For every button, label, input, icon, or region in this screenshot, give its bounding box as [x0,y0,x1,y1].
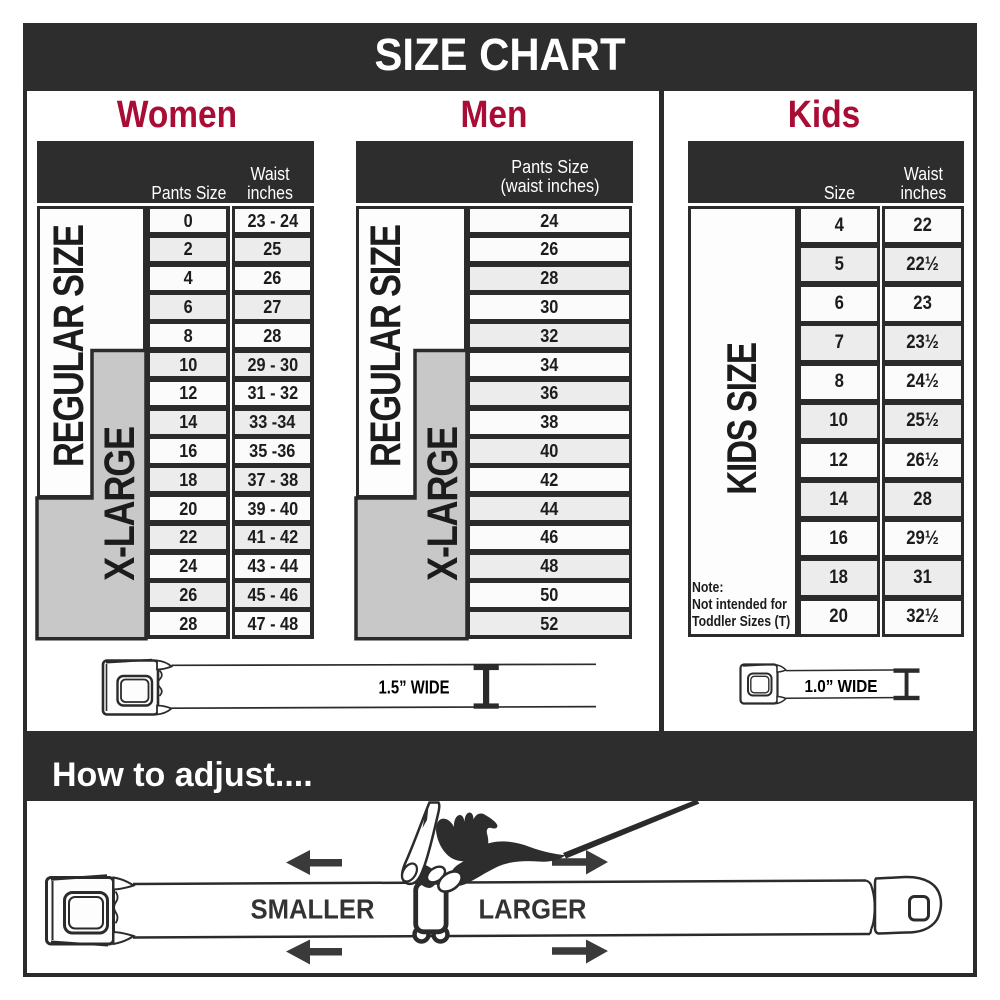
svg-text:SMALLER: SMALLER [251,893,375,924]
svg-text:1.5” WIDE: 1.5” WIDE [379,677,450,698]
svg-text:1.0” WIDE: 1.0” WIDE [805,676,878,696]
svg-text:LARGER: LARGER [479,893,587,924]
